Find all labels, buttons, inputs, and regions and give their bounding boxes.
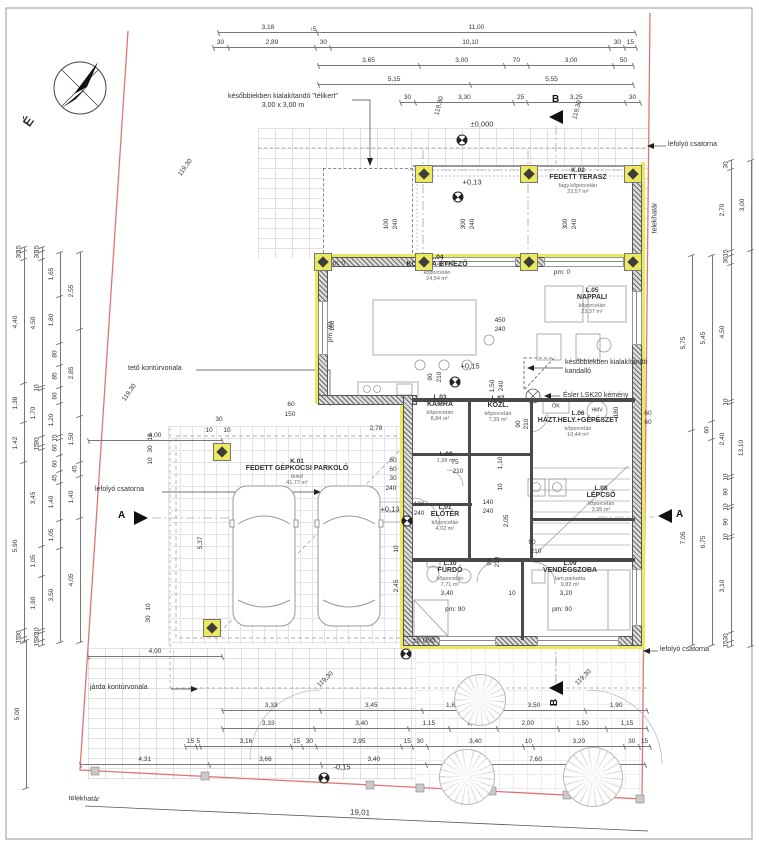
room-ar: 4,02 m² <box>431 526 459 532</box>
level-label: +0,13 <box>381 505 400 513</box>
dim-segment: 3,45 <box>321 700 423 711</box>
dim-segment: 25 <box>514 92 528 103</box>
dim-segment: 90 <box>723 509 734 536</box>
partition-stair-south <box>530 518 635 521</box>
room-nm: FÜRDŐ <box>437 567 464 575</box>
dim-label: 30 <box>306 739 313 746</box>
dim-segment: 70 <box>504 55 528 66</box>
dim-label: 3,18 <box>262 25 275 32</box>
dim-label: 1,05 <box>49 529 56 542</box>
window-north-2 <box>545 258 623 266</box>
dim-segment: 45 <box>72 462 83 476</box>
dim-label: 30 <box>416 739 423 746</box>
room-nm: LÉPCSŐ <box>587 492 616 500</box>
dim-label: 210 <box>524 419 531 430</box>
dim-label: 10,10 <box>462 40 478 47</box>
dim-label: 85 <box>52 373 59 380</box>
room-id: L.05 <box>577 287 607 294</box>
dim-label: 3,33 <box>265 703 278 710</box>
dim-segment: 85 <box>52 365 63 388</box>
dim-label: 240 <box>499 381 506 392</box>
dim-segment: 2,89 <box>228 37 316 48</box>
dim-label: 4,50 <box>31 317 38 330</box>
dim-label: 2,05 <box>504 515 511 528</box>
dim-label: 2,95 <box>353 739 366 746</box>
dim-chain-left-1: 15304,401,381,425,903015 <box>16 247 27 642</box>
dim-label: 10 <box>223 428 230 435</box>
dim-label: 25 <box>517 95 524 102</box>
dim-segment: 30 <box>624 736 639 747</box>
dim-segment: 30 <box>723 160 734 169</box>
dim-segment: 3,16 <box>201 736 291 747</box>
dim-label: 5 <box>197 739 201 746</box>
dim-segment: 7,05 <box>684 430 695 645</box>
dim-segment: 3,30 <box>415 92 514 103</box>
dim-segment: 60 <box>52 456 63 472</box>
dim-segment: 15 <box>402 736 413 747</box>
column <box>213 443 231 461</box>
dim-label: 3,10 <box>720 579 727 592</box>
dim-label: 150 <box>285 412 296 419</box>
note-kandallo: későbbiekben kialakítandó kandalló <box>565 358 648 376</box>
dim-label: 4,05 <box>69 574 76 587</box>
column <box>314 253 332 271</box>
dim-segment: 30 <box>413 736 428 747</box>
dim-label: 1,15 <box>621 721 634 728</box>
room-ar: 1,98 m² <box>437 459 456 465</box>
window-east-2 <box>633 570 641 625</box>
dim-label: 240 <box>386 486 397 493</box>
dim-chain-left-5m: 5,00 <box>18 640 29 788</box>
dim-label: 5,55 <box>545 77 558 84</box>
dim-segment: 1,05 <box>52 521 63 549</box>
note-kandallo-line2: kandalló <box>565 367 648 376</box>
equipment-label: ÖK <box>552 404 560 410</box>
dim-segment: 90 <box>723 478 734 505</box>
dim-label: 240 <box>414 511 425 518</box>
dim-label: 60 <box>287 402 294 409</box>
dim-segment: 30 <box>34 251 45 259</box>
room-ar: 9,82 m² <box>543 582 597 588</box>
dim-label: 60 <box>52 444 59 451</box>
level-label: ±0,000 <box>413 636 436 644</box>
dim-chain-top-3: 3,653,00703,0050 <box>318 55 633 66</box>
window-east-1 <box>633 292 641 344</box>
dim-segment: 4,00 <box>88 430 222 441</box>
window-south-2 <box>538 637 618 645</box>
note-lefolyo-left: lefolyó csatorna <box>95 485 144 494</box>
room-ar: 24,54 m² <box>406 276 467 282</box>
dim-label: 1,70 <box>31 407 38 420</box>
partition-bath-bedroom <box>521 560 524 640</box>
dim-label: 3,30 <box>458 95 471 102</box>
dim-label: 30 <box>614 40 621 47</box>
dim-segment: 1,40 <box>72 476 83 519</box>
dim-label: 3,40 <box>441 591 454 598</box>
room-mt: kőporcelán <box>485 410 512 416</box>
dim-chain-left-2: 15304,50101,7030153,451,051,90103015 <box>34 247 45 645</box>
dim-chain-right-3: 302,7015304,50102,4010901090103,103015 <box>723 160 734 646</box>
dim-segment: 15 <box>625 37 636 48</box>
dim-segment: 4,50 <box>723 264 734 400</box>
partition-v1 <box>468 400 471 561</box>
partition-kamra-south <box>412 453 532 456</box>
dim-chain-bottom-3: 1553,1615302,9515303,40103,203015 <box>185 736 650 747</box>
dim-segment: 2,40 <box>723 403 734 475</box>
dim-segment: 15 <box>34 641 45 645</box>
dim-segment: 3,40 <box>427 736 523 747</box>
dim-segment: 3,65 <box>318 55 419 66</box>
dim-label: 45 <box>72 465 79 472</box>
dim-label: 90 <box>428 373 435 380</box>
dim-segment: 5,90 <box>16 463 27 629</box>
dim-label: 300 <box>461 219 468 230</box>
dim-label: 2,85 <box>69 367 76 380</box>
dim-label: 30 <box>404 95 411 102</box>
dim-label: 30 <box>148 445 155 452</box>
dim-segment: 1,50 <box>72 417 83 463</box>
room-nm: KAMRA <box>427 401 454 409</box>
dim-segment: 4,00 <box>88 646 222 657</box>
dim-label: 140 <box>483 500 494 507</box>
dim-segment: 1,50 <box>558 718 607 729</box>
dim-label: 30 <box>389 476 396 483</box>
dim-segment: 4,31 <box>80 754 210 765</box>
room-nm: FEDETT GÉPKOCSI PARKOLÓ <box>246 465 349 473</box>
dim-label: 10 <box>525 739 532 746</box>
note-telikert-line2: 3,00 x 3,00 m <box>212 101 354 110</box>
room-nm: FEDETT TERASZ <box>549 174 606 182</box>
dim-label: 3,40 <box>469 739 482 746</box>
dim-label: 15 <box>293 739 300 746</box>
dim-label: 3,50 <box>528 703 541 710</box>
dim-label: 1,80 <box>49 314 56 327</box>
dim-segment: 5,75 <box>684 255 695 430</box>
dim-label: 45 <box>52 474 59 481</box>
dim-label: 5,90 <box>13 540 20 553</box>
dim-label: 2,89 <box>266 40 279 47</box>
dim-label: 5,75 <box>681 336 688 349</box>
dim-label: 30 <box>16 252 23 259</box>
room-ar: 23,37 m² <box>577 309 607 315</box>
dim-segment: 1,20 <box>52 404 63 436</box>
level-label: ±0,000 <box>471 120 494 128</box>
boundary-label: telekhatár <box>69 795 100 803</box>
dim-segment: 4,50 <box>34 260 45 387</box>
dim-chain-top-1: 3,1811,00 <box>218 22 635 33</box>
dim-segment: 6,75 <box>704 439 715 645</box>
dim-chain-right-4: 3,0013,10 <box>743 160 754 646</box>
dim-label: 4,31 <box>138 757 151 764</box>
dim-label: 100 <box>414 502 425 509</box>
dim-label: 3,00 <box>455 58 468 65</box>
level-label: +0,15 <box>461 362 480 370</box>
room-nm: NAPPALI <box>577 294 607 302</box>
dim-label: 3,50 <box>49 589 56 602</box>
dim-label: 3,00 <box>565 58 578 65</box>
dim-label: 1,65 <box>49 268 56 281</box>
room-label: L.10FÜRDŐkőporcelán7,71 m² <box>437 560 464 588</box>
dim-label: 3,45 <box>365 703 378 710</box>
dim-label: 1,40 <box>69 491 76 504</box>
dim-segment: 60 <box>704 421 715 439</box>
room-label: K.02FEDETT TERASZfagy.kőporcelán22,57 m² <box>549 167 606 195</box>
note-kandallo-line1: későbbiekben kialakítandó <box>565 358 648 367</box>
dim-label: 10 <box>205 428 212 435</box>
room-label: L.021,98 m² <box>437 451 456 465</box>
dim-segment: 80 <box>52 344 63 365</box>
dim-segment: 30 <box>302 736 317 747</box>
dim-label: 13,10 <box>739 440 746 456</box>
dim-segment: 30 <box>723 255 734 264</box>
dim-chain-bottom-2: 3,333,401,151,502,001,501,15 <box>222 718 647 729</box>
dim-label: 3,00 <box>740 199 747 212</box>
dim-label: 60 <box>644 411 651 418</box>
dim-label: 90 <box>487 558 494 565</box>
room-ar: 8,84 m² <box>427 416 454 422</box>
dim-label: 3,40 <box>355 721 368 728</box>
dim-label: 60 <box>704 427 711 434</box>
property-boundary <box>80 13 650 799</box>
dim-segment: 11,00 <box>318 22 635 33</box>
dim-label: 50 <box>620 58 627 65</box>
dim-segment: 3,10 <box>723 539 734 633</box>
dim-segment: 15 <box>723 642 734 647</box>
dim-label: 1,50 <box>576 721 589 728</box>
partition-v2 <box>530 400 533 561</box>
room-nm: VENDÉGSZOBA <box>543 567 597 575</box>
dim-segment: 1,15 <box>409 718 449 729</box>
dim-label: 7,60 <box>529 757 542 764</box>
dim-label: 10 <box>148 457 155 464</box>
dim-segment: 5,15 <box>318 74 470 85</box>
window-south-1 <box>440 637 495 645</box>
dim-label: 60 <box>52 460 59 467</box>
dim-label: 10 <box>498 483 505 490</box>
dim-label: 1,15 <box>422 721 435 728</box>
dim-label: 1,50 <box>69 433 76 446</box>
dim-chain-4m-upper: 4,00 <box>88 430 222 441</box>
dim-segment: 30 <box>610 37 625 48</box>
fence-posts <box>91 767 644 803</box>
dim-label: 15 <box>723 640 730 647</box>
dim-segment: 5,00 <box>18 640 29 788</box>
dim-label: 60 <box>389 467 396 474</box>
dim-label: 180 <box>330 321 337 332</box>
level-label: -0,15 <box>333 763 350 771</box>
dim-segment: 2,70 <box>723 169 734 251</box>
dim-label: 60 <box>52 392 59 399</box>
room-ar: 10,44 m² <box>538 432 618 438</box>
dim-label: 11,00 <box>469 25 485 32</box>
dim-segment: 3,45 <box>34 450 45 547</box>
dim-segment: 3,00 <box>419 55 504 66</box>
dim-label: 3,40 <box>368 757 381 764</box>
dim-label: 240 <box>495 327 506 334</box>
dim-label: 2,78 <box>370 426 383 433</box>
dim-segment: 1,65 <box>52 252 63 296</box>
dim-segment: 5,45 <box>704 255 715 421</box>
tree <box>563 747 623 807</box>
note-lefolyo-bottom-right: lefolyó csatorna <box>660 645 709 654</box>
dim-segment: 30 <box>213 37 228 48</box>
dim-segment: 1,90 <box>585 700 647 711</box>
dim-label: 60 <box>644 420 651 427</box>
room-label: L.01ELŐTÉRkőporcelán4,02 m² <box>431 504 459 532</box>
dim-label: 240 <box>572 219 579 230</box>
dim-label: 90 <box>528 540 535 547</box>
dim-segment: 2,85 <box>72 330 83 417</box>
dim-segment: 1,42 <box>16 423 27 463</box>
dim-segment: 15 <box>291 736 302 747</box>
dim-chain-top-4: 5,155,55 <box>318 74 633 85</box>
dim-segment: 1,38 <box>16 384 27 423</box>
room-ar: 3,95 m² <box>587 507 616 513</box>
dim-label: ↑5 <box>310 27 317 34</box>
dim-label: 4,40 <box>13 315 20 328</box>
room-label: L.05NAPPALIkőporcelán23,37 m² <box>577 287 607 315</box>
room-mt: kőporcelán <box>427 409 454 415</box>
dim-label: 10 <box>146 603 153 610</box>
dim-segment: 3,00 <box>743 160 754 251</box>
room-mt: kőporcelán <box>437 575 464 581</box>
dim-label: 15 <box>627 40 634 47</box>
column <box>203 619 221 637</box>
note-lefolyo-top-right: lefolyó csatorna <box>668 140 717 149</box>
room-mt: kőporcelán <box>577 302 607 308</box>
dim-segment: 1,70 <box>34 389 45 437</box>
dim-label: 10 <box>148 433 155 440</box>
dim-segment: 1,90 <box>34 576 45 629</box>
pm-label: pm: 90 <box>552 607 572 614</box>
dim-label: 5,45 <box>701 332 708 345</box>
dim-label: 90 <box>723 488 730 495</box>
dim-label: 2,40 <box>720 433 727 446</box>
room-id: L.02 <box>437 451 456 458</box>
room-label: L.03KAMRAkőporcelán8,84 m² <box>427 394 454 422</box>
dim-label: 5,00 <box>15 708 22 721</box>
dim-label: 1,38 <box>13 397 20 410</box>
dim-segment: 45 <box>52 472 63 484</box>
level-label: +0,13 <box>463 178 482 186</box>
note-jarda-kontur: járda kontúrvonala <box>90 683 148 692</box>
dim-segment: 1,40 <box>52 484 63 521</box>
cars <box>230 486 383 626</box>
dim-label: 15 <box>404 739 411 746</box>
column <box>624 253 642 271</box>
dim-segment: 2,55 <box>72 252 83 330</box>
dim-label: 3,33 <box>262 721 275 728</box>
dim-segment: 1,05 <box>34 547 45 577</box>
dim-segment: 3,18 <box>218 22 318 33</box>
dim-chain-4m-lower: 4,00 <box>88 646 222 657</box>
dim-segment: 3,00 <box>528 55 613 66</box>
room-label: K.01FEDETT GÉPKOCSI PARKOLÓtérkő41,77 m² <box>246 458 349 486</box>
dim-label: 60 <box>389 458 396 465</box>
dim-label: 240 <box>483 509 494 516</box>
dim-segment: 3,50 <box>52 549 63 642</box>
room-nm: KÖZL. <box>485 402 512 410</box>
dim-label: 6,75 <box>701 536 708 549</box>
pm-label: pm: 0 <box>554 270 570 277</box>
dim-label: 10 <box>394 545 401 552</box>
dim-label: 1,20 <box>49 413 56 426</box>
dim-label: 3,66 <box>259 757 272 764</box>
dim-segment: 60 <box>52 388 63 404</box>
dim-label: 30 <box>146 615 153 622</box>
wall-kitchen-south <box>319 396 416 404</box>
dim-label: 3,45 <box>31 492 38 505</box>
dim-segment: 30 <box>16 251 27 259</box>
dim-chain-left-4: 2,552,851,50451,404,05 <box>72 252 83 642</box>
dim-segment: 10,10 <box>331 37 610 48</box>
dim-label: 15 <box>187 739 194 746</box>
dim-label: 210 <box>437 372 444 383</box>
dim-label: 210 <box>453 469 464 476</box>
dim-label: 1,42 <box>13 436 20 449</box>
dim-chain-left-3: 1,651,808085601,20156060451,401,053,50 <box>52 252 63 642</box>
dim-segment: 50 <box>614 55 633 66</box>
dim-label: 5,15 <box>388 77 401 84</box>
dim-segment: 3,20 <box>533 736 624 747</box>
dim-segment: 3,33 <box>222 700 321 711</box>
dim-label: 30 <box>215 417 222 424</box>
dim-label: 210 <box>531 549 542 556</box>
room-ar: 7,39 m² <box>485 417 512 423</box>
room-label: L.09VENDÉGSZOBAlam.parketta9,82 m² <box>543 560 597 588</box>
dim-label: 4,50 <box>720 326 727 339</box>
tree <box>439 749 495 805</box>
dim-label: 1,90 <box>610 703 623 710</box>
dim-label: 300 <box>563 219 570 230</box>
dim-segment: 1,80 <box>52 296 63 344</box>
note-telikert: későbbiekben kialakítandó "télikert" 3,0… <box>212 92 354 110</box>
dim-label: 2,00 <box>522 721 535 728</box>
column <box>520 253 538 271</box>
room-label: L.07KÖZL.kőporcelán7,39 m² <box>485 395 512 423</box>
dim-segment: 5,55 <box>470 74 633 85</box>
note-kemeny: Ésler LSK20 kémény <box>563 391 628 400</box>
dim-label: 100 <box>384 219 391 230</box>
dim-label: 30 <box>320 40 327 47</box>
dim-segment: 3,40 <box>315 718 409 729</box>
dim-label: 4,00 <box>149 649 162 656</box>
dim-label: 3,16 <box>240 739 253 746</box>
dim-segment: 10 <box>524 736 534 747</box>
column <box>520 165 538 183</box>
dim-label: 1,90 <box>31 596 38 609</box>
pm-label: pm: 90 <box>445 607 465 614</box>
dim-segment: 4,40 <box>16 260 27 384</box>
room-label: L.08LÉPCSŐkőporcelán3,95 m² <box>587 485 616 513</box>
tree <box>454 674 506 726</box>
room-label: L.06HÁZT.HELY.+GÉPÉSZETkőporcelán10,44 m… <box>538 410 618 438</box>
section-marker-a-left: A <box>118 510 125 521</box>
dim-label: 3,20 <box>560 591 573 598</box>
dim-label: 1,40 <box>49 496 56 509</box>
dim-label: 30 <box>628 739 635 746</box>
dim-label: 1,10 <box>498 457 505 470</box>
room-mt: kőporcelán <box>587 500 616 506</box>
dim-label: 240 <box>393 219 400 230</box>
dim-segment: 3,66 <box>210 754 322 765</box>
dim-segment: 15 <box>185 736 196 747</box>
dim-segment: 30 <box>400 92 415 103</box>
dim-label: 2,55 <box>69 285 76 298</box>
dim-segment: 15 <box>639 736 650 747</box>
dim-segment: 30 <box>625 92 640 103</box>
room-ar: 22,57 m² <box>549 189 606 195</box>
